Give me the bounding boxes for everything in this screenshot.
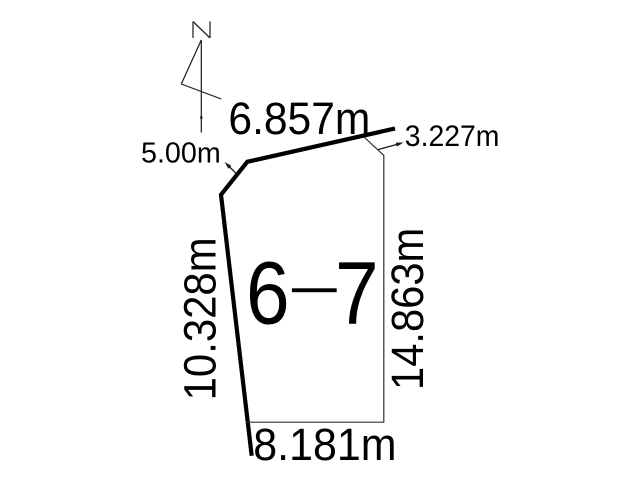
svg-text:5.00m: 5.00m (141, 137, 221, 169)
svg-text:6: 6 (246, 243, 290, 343)
svg-text:10.328m: 10.328m (175, 237, 226, 400)
svg-text:8.181m: 8.181m (253, 420, 396, 470)
svg-text:14.863m: 14.863m (383, 228, 433, 390)
svg-text:6.857m: 6.857m (228, 94, 370, 145)
svg-text:7: 7 (335, 243, 379, 343)
svg-text:3.227m: 3.227m (405, 121, 500, 154)
